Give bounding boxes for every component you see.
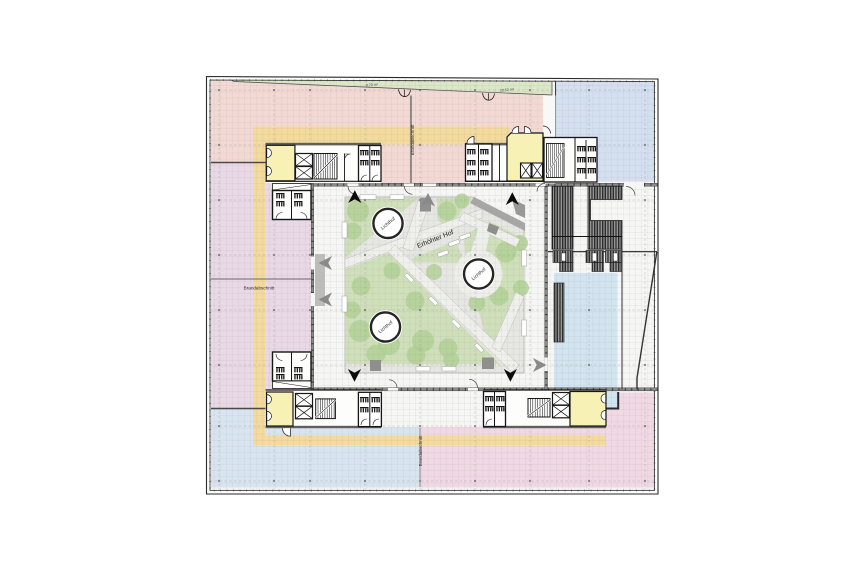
svg-text:Brandabschnitt: Brandabschnitt [418, 435, 423, 466]
svg-text:Brandabschnitt: Brandabschnitt [410, 124, 415, 155]
svg-text:Brandabschnitt: Brandabschnitt [244, 286, 275, 291]
